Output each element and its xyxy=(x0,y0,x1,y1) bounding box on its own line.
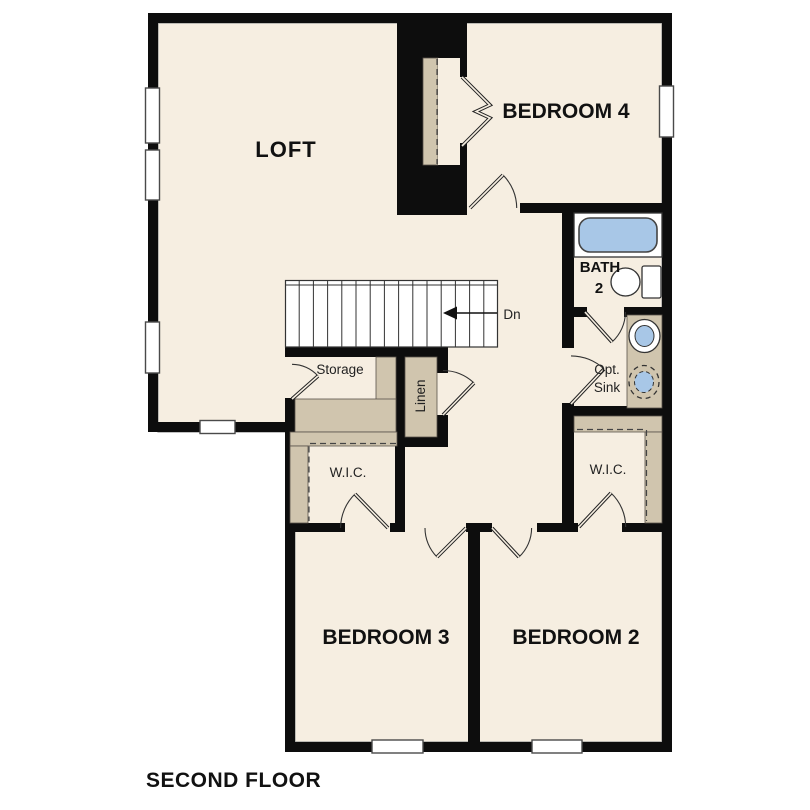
bedroom4-closet-opening xyxy=(460,77,467,143)
wic-right-label: W.I.C. xyxy=(590,462,627,477)
window xyxy=(660,86,674,137)
wall xyxy=(468,523,480,752)
toilet-tank xyxy=(642,266,661,298)
window xyxy=(146,88,160,143)
storage-label: Storage xyxy=(316,362,363,377)
window xyxy=(532,740,582,753)
wall xyxy=(437,347,448,373)
window xyxy=(200,421,235,434)
wall xyxy=(390,523,405,532)
wall xyxy=(562,203,574,348)
bath-label: BATH xyxy=(580,259,621,276)
wic-right-shelf-side xyxy=(645,432,662,523)
optional-sink-basin xyxy=(635,372,654,393)
bedroom4-closet-shelf xyxy=(423,58,438,165)
floor-plan-drawing: LOFT BEDROOM 4 BEDROOM 3 BEDROOM 2 BATH … xyxy=(0,0,810,810)
wall xyxy=(285,523,345,532)
wall xyxy=(537,523,578,532)
bath-number-label: 2 xyxy=(595,280,603,297)
wall xyxy=(285,398,295,426)
wall xyxy=(562,307,587,317)
bathtub-fixture xyxy=(579,218,657,252)
storage-shelf-bottom xyxy=(295,399,396,432)
loft-label: LOFT xyxy=(255,137,316,162)
staircase xyxy=(286,281,498,348)
wic-left-label: W.I.C. xyxy=(330,465,367,480)
wall xyxy=(562,403,574,532)
wall xyxy=(520,203,662,213)
stair-direction-label: Dn xyxy=(503,307,520,322)
wic-left-shelf-side xyxy=(290,446,308,523)
opt-sink-label-line1: Opt. xyxy=(594,362,620,377)
floor-plan-page: LOFT BEDROOM 4 BEDROOM 3 BEDROOM 2 BATH … xyxy=(0,0,810,810)
window xyxy=(372,740,423,753)
window xyxy=(146,150,160,200)
bedroom2-label: BEDROOM 2 xyxy=(512,626,639,649)
wall xyxy=(285,347,448,357)
window xyxy=(146,322,160,373)
page-title: SECOND FLOOR xyxy=(146,769,321,792)
bedroom4-label: BEDROOM 4 xyxy=(502,100,630,123)
opt-sink-label-line2: Sink xyxy=(594,380,621,395)
wall xyxy=(395,437,448,447)
bedroom4-closet-floor xyxy=(438,58,460,165)
sink-basin xyxy=(635,326,654,347)
linen-label: Linen xyxy=(413,379,428,412)
wall xyxy=(622,523,662,532)
bedroom3-label: BEDROOM 3 xyxy=(322,626,449,649)
